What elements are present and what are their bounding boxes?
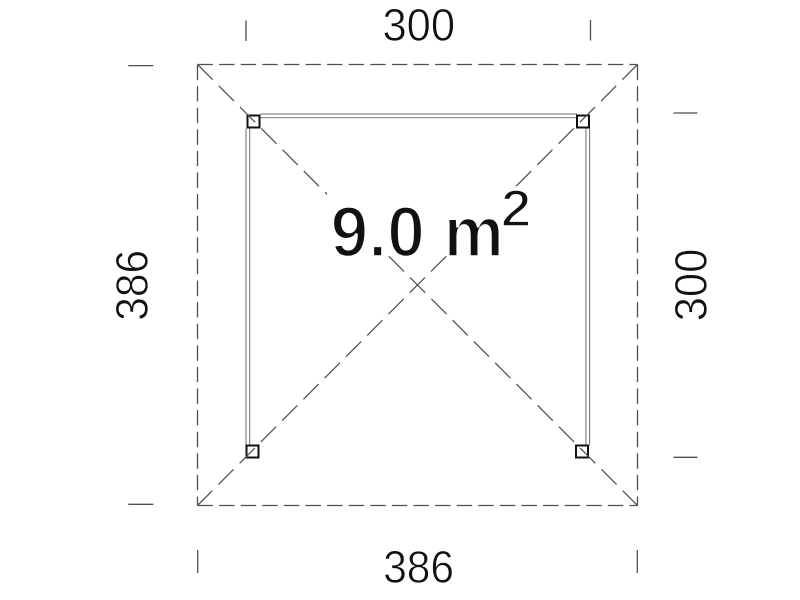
svg-text:300: 300 xyxy=(382,0,455,51)
svg-text:2: 2 xyxy=(501,180,532,239)
svg-text:386: 386 xyxy=(383,542,454,593)
svg-text:300: 300 xyxy=(666,249,717,322)
svg-text:9.0 m: 9.0 m xyxy=(331,193,505,272)
svg-text:386: 386 xyxy=(107,250,158,321)
